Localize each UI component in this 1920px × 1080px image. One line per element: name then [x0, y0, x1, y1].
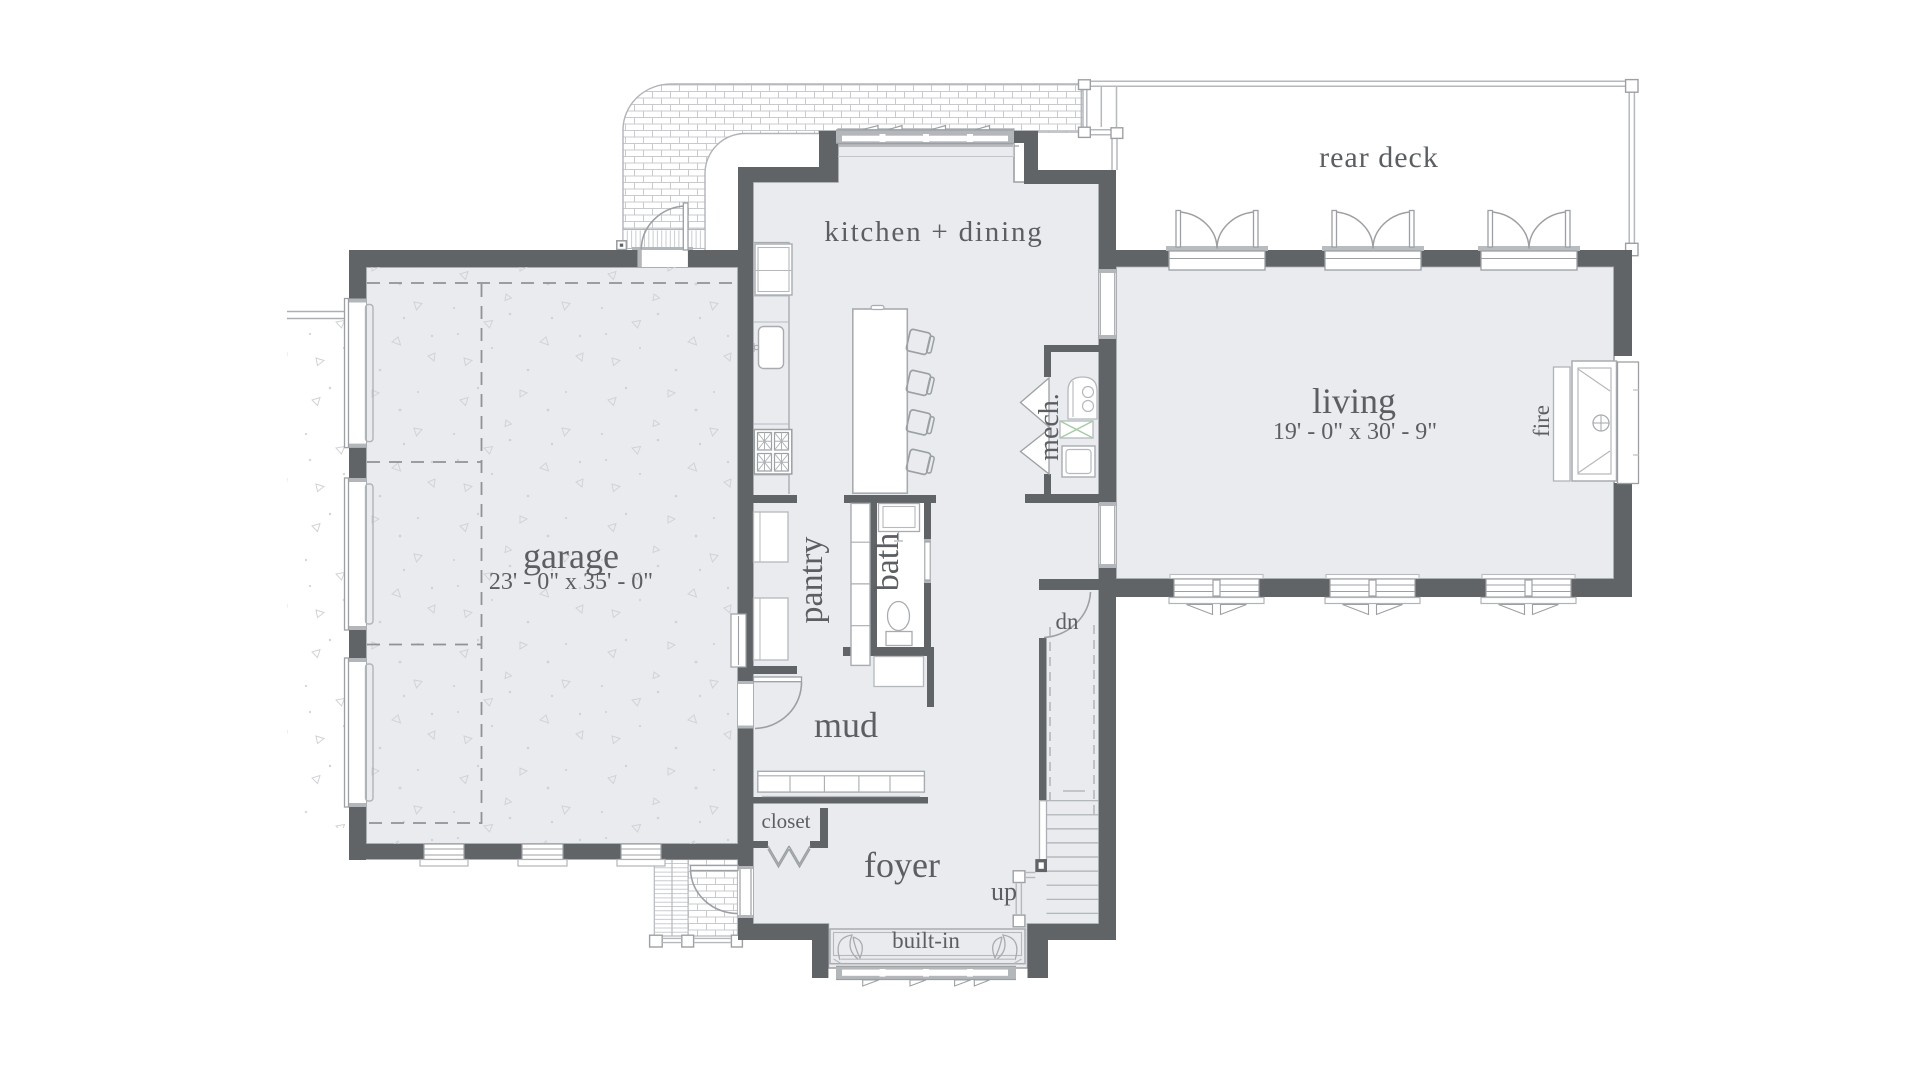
svg-text:mud: mud	[814, 705, 878, 745]
svg-text:23' - 0" x 35' - 0": 23' - 0" x 35' - 0"	[489, 569, 653, 595]
svg-text:living: living	[1312, 381, 1396, 421]
svg-text:pantry: pantry	[793, 537, 830, 624]
svg-text:built-in: built-in	[892, 928, 960, 953]
svg-text:dn: dn	[1056, 609, 1080, 634]
svg-text:up: up	[991, 877, 1017, 906]
svg-text:closet: closet	[762, 809, 811, 833]
svg-text:mech.: mech.	[1034, 393, 1065, 461]
svg-text:kitchen + dining: kitchen + dining	[824, 216, 1043, 248]
svg-text:bath: bath	[869, 533, 906, 592]
svg-text:rear deck: rear deck	[1319, 141, 1439, 174]
svg-text:fire: fire	[1529, 405, 1554, 437]
svg-text:foyer: foyer	[864, 845, 940, 885]
svg-text:19' - 0" x 30' - 9": 19' - 0" x 30' - 9"	[1273, 419, 1437, 445]
